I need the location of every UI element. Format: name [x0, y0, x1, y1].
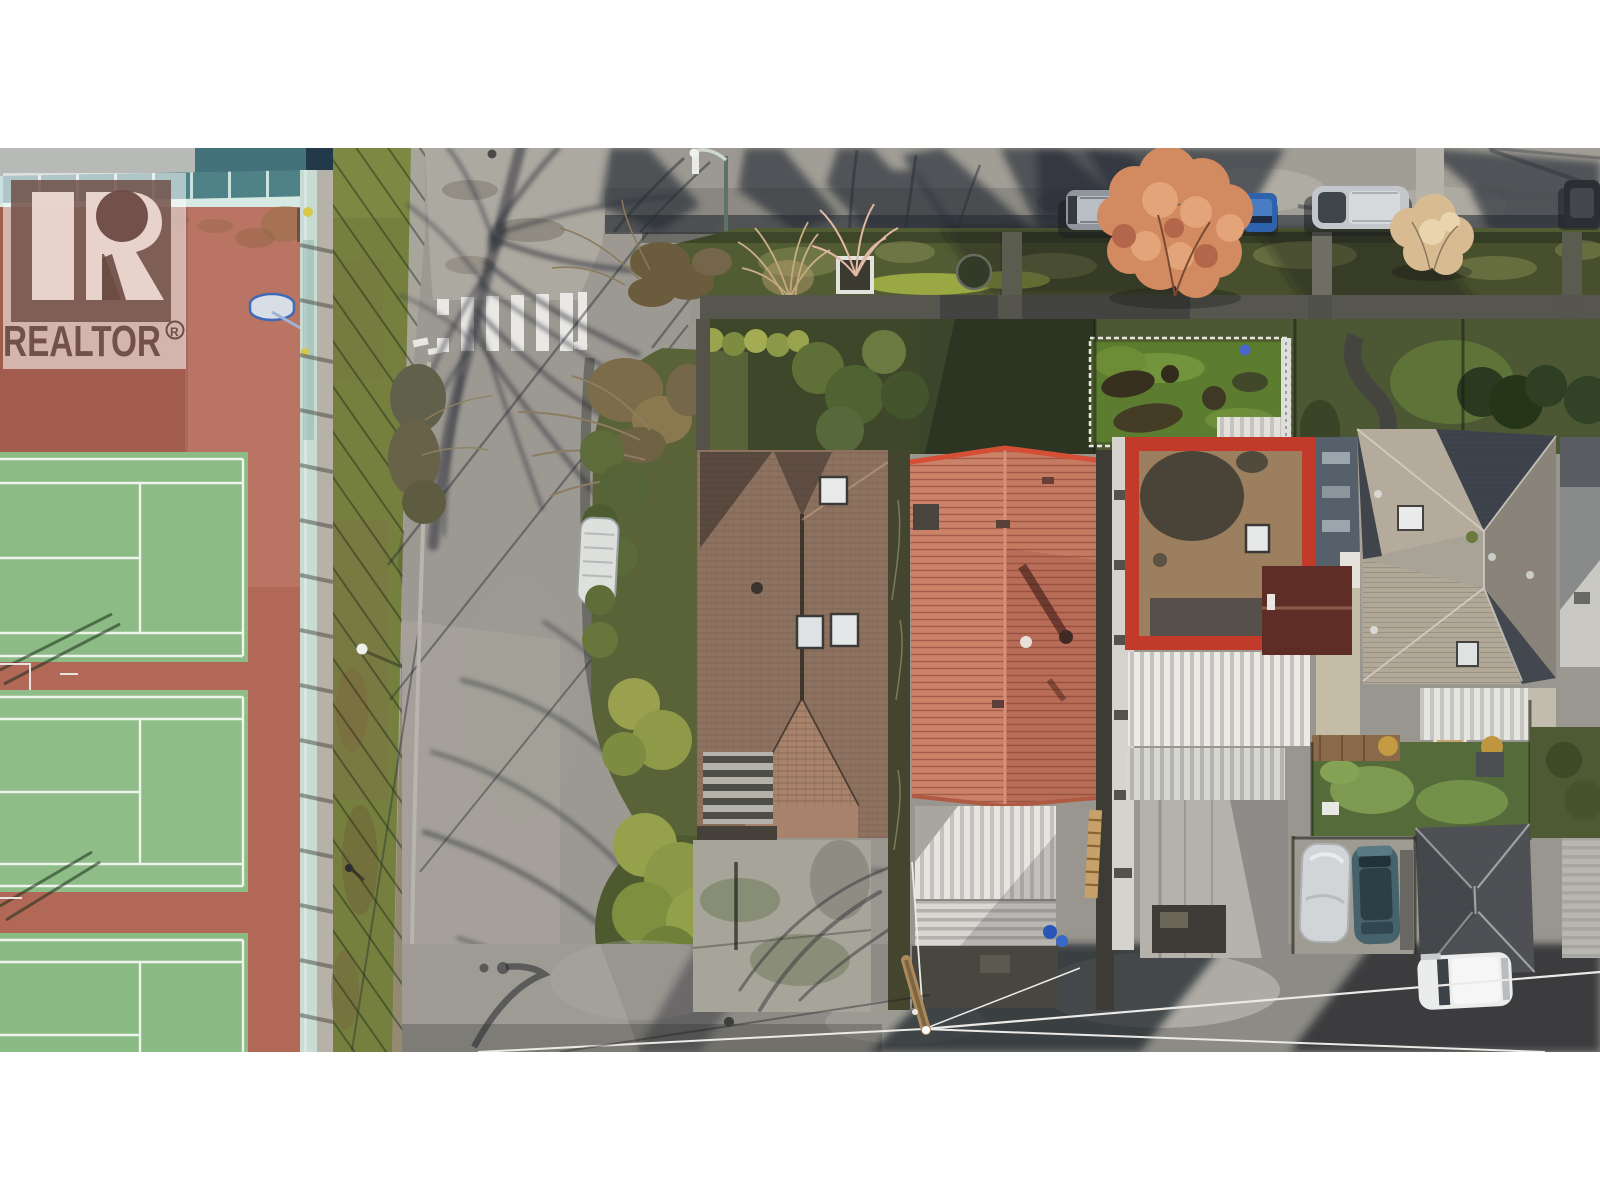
svg-text:REALTOR: REALTOR — [3, 317, 161, 366]
svg-text:R: R — [170, 325, 179, 339]
